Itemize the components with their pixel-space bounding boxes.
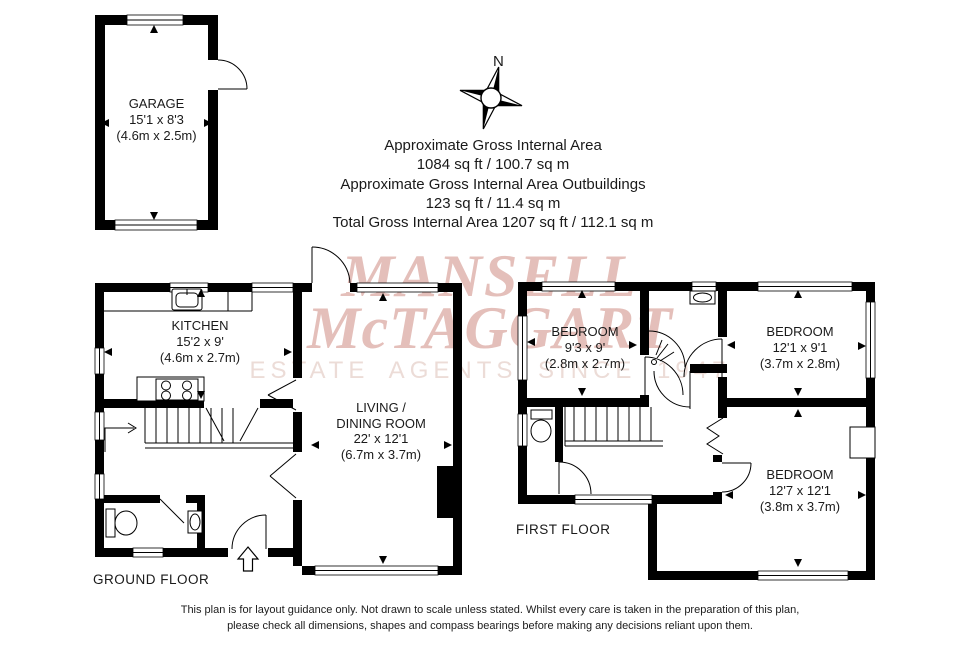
window <box>95 412 104 440</box>
floorplan-page: MANSELL McTAGGART ESTATE AGENTS SINCE 19… <box>0 0 980 653</box>
door-leaf <box>206 408 224 441</box>
area-line: 1084 sq ft / 100.7 sq m <box>243 155 743 174</box>
garage-window-top <box>127 15 183 25</box>
dim-arrow <box>578 388 586 396</box>
compass-north-label: N <box>493 53 504 70</box>
dim-arrow <box>794 559 802 567</box>
room-dim-imperial: 15'1 x 8'3 <box>96 112 217 128</box>
room-dim-metric: (3.7m x 2.8m) <box>730 356 870 372</box>
disclaimer: This plan is for layout guidance only. N… <box>140 603 840 634</box>
room-name: KITCHEN <box>130 318 270 334</box>
room-dim-imperial: 22' x 12'1 <box>311 431 451 447</box>
room-name: BEDROOM <box>730 467 870 483</box>
garage-window-bottom <box>115 220 197 230</box>
stairs-first <box>565 407 663 446</box>
room-dim-imperial: 9'3 x 9' <box>515 340 655 356</box>
dim-arrow <box>794 409 802 417</box>
alcove-recess <box>850 427 875 458</box>
door-leaf <box>240 408 258 441</box>
first-floor-label: FIRST FLOOR <box>516 522 611 537</box>
toilet-icon <box>531 410 552 442</box>
window <box>357 283 438 292</box>
area-summary: Approximate Gross Internal Area 1084 sq … <box>243 136 743 232</box>
window <box>95 474 104 499</box>
window <box>95 348 104 374</box>
ground-floor-label: GROUND FLOOR <box>93 572 209 587</box>
bedroom3-label: BEDROOM 12'7 x 12'1 (3.8m x 3.7m) <box>730 467 870 515</box>
chimney-breast <box>437 466 462 518</box>
window <box>133 548 163 557</box>
dim-arrow <box>150 25 158 33</box>
room-dim-imperial: 15'2 x 9' <box>130 334 270 350</box>
dim-arrow <box>284 348 292 356</box>
door-arc <box>654 371 690 409</box>
window <box>315 566 438 575</box>
door-arc <box>312 247 350 292</box>
double-door <box>268 380 296 498</box>
window <box>542 282 615 291</box>
basin-icon <box>188 511 202 533</box>
bedroom2-label: BEDROOM 12'1 x 9'1 (3.7m x 2.8m) <box>730 324 870 372</box>
dim-arrow <box>150 212 158 220</box>
area-line: 123 sq ft / 11.4 sq m <box>243 194 743 213</box>
dim-arrow <box>379 293 387 301</box>
basin-icon <box>690 291 715 304</box>
area-line: Total Gross Internal Area 1207 sq ft / 1… <box>243 213 743 232</box>
window <box>758 571 848 580</box>
sink-icon <box>172 289 202 310</box>
dim-arrow <box>104 348 112 356</box>
chimney-breast <box>707 418 723 454</box>
door-leaf <box>160 499 184 523</box>
window <box>252 283 293 292</box>
room-name: BEDROOM <box>515 324 655 340</box>
room-dim-imperial: 12'1 x 9'1 <box>730 340 870 356</box>
entrance-arrow-icon <box>238 547 258 571</box>
window <box>692 282 716 291</box>
living-label: LIVING / DINING ROOM 22' x 12'1 (6.7m x … <box>311 400 451 462</box>
window <box>758 282 852 291</box>
stairs-ground <box>105 408 298 452</box>
window <box>575 495 652 504</box>
room-dim-metric: (4.6m x 2.5m) <box>96 128 217 144</box>
area-line: Approximate Gross Internal Area <box>243 136 743 155</box>
room-name: DINING ROOM <box>311 416 451 432</box>
window <box>518 414 527 446</box>
door-arc <box>559 462 591 494</box>
garage-label: GARAGE 15'1 x 8'3 (4.6m x 2.5m) <box>96 96 217 144</box>
garage-door <box>208 60 247 90</box>
toilet-icon <box>106 509 137 537</box>
bedroom1-label: BEDROOM 9'3 x 9' (2.8m x 2.7m) <box>515 324 655 372</box>
room-dim-metric: (3.8m x 3.7m) <box>730 499 870 515</box>
compass-icon <box>460 67 522 129</box>
entrance-door <box>232 515 266 549</box>
hob-icon <box>137 377 204 401</box>
area-line: Approximate Gross Internal Area Outbuild… <box>243 175 743 194</box>
room-name: BEDROOM <box>730 324 870 340</box>
room-dim-metric: (6.7m x 3.7m) <box>311 447 451 463</box>
dim-arrow <box>794 388 802 396</box>
room-dim-metric: (4.6m x 2.7m) <box>130 350 270 366</box>
kitchen-label: KITCHEN 15'2 x 9' (4.6m x 2.7m) <box>130 318 270 366</box>
disclaimer-line: please check all dimensions, shapes and … <box>140 619 840 635</box>
room-dim-metric: (2.8m x 2.7m) <box>515 356 655 372</box>
room-dim-imperial: 12'7 x 12'1 <box>730 483 870 499</box>
room-name: GARAGE <box>96 96 217 112</box>
dim-arrow <box>379 556 387 564</box>
room-name: LIVING / <box>311 400 451 416</box>
disclaimer-line: This plan is for layout guidance only. N… <box>140 603 840 619</box>
